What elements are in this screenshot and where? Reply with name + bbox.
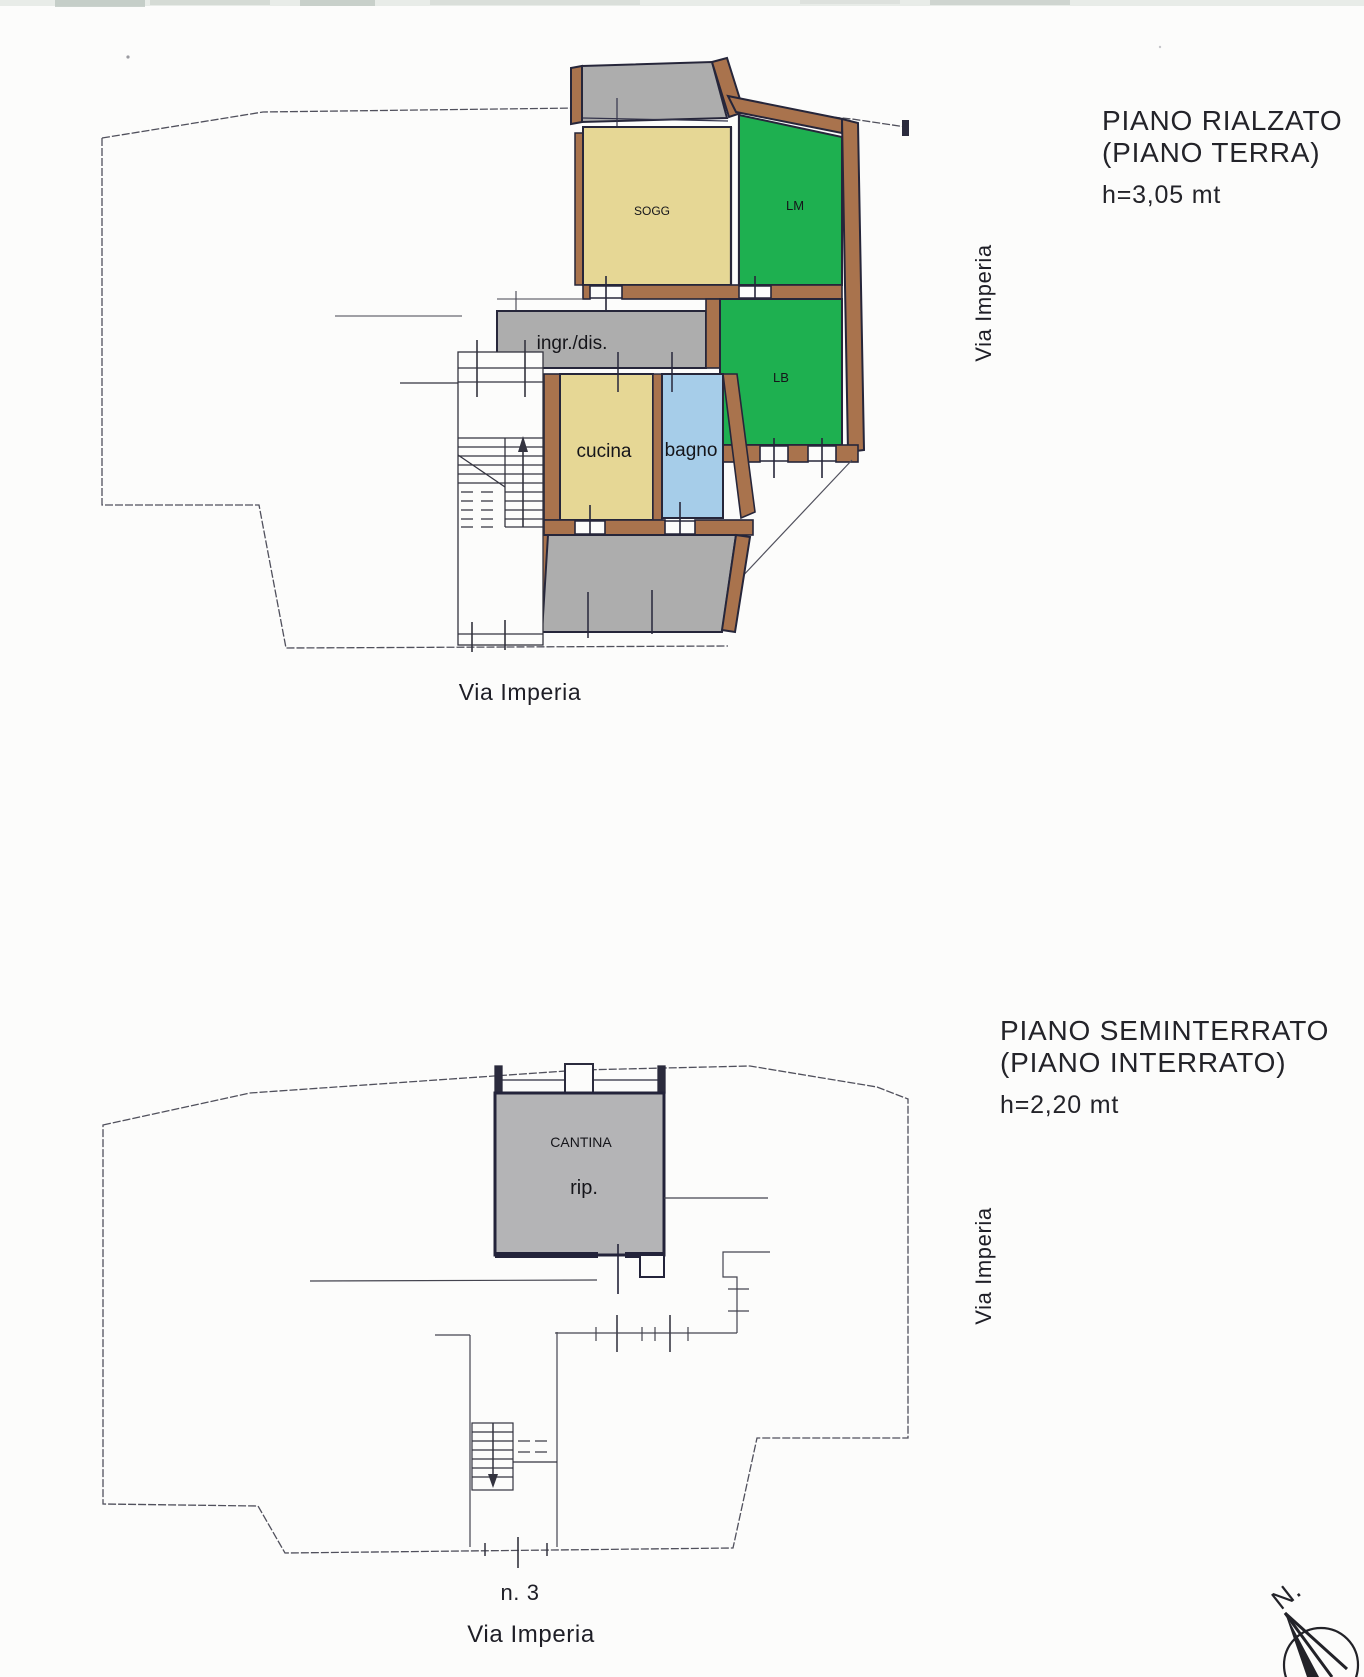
label-room-cucina: cucina <box>577 441 632 462</box>
floorplan-canvas: SOGG LM ingr./dis. cucina bagno LB PIANO… <box>0 0 1364 1677</box>
upper-terrace-post <box>902 120 909 136</box>
upper-wall-sogg-lm <box>731 115 739 285</box>
upper-wall-right <box>842 119 864 452</box>
compass-north-label: N. <box>1266 1574 1307 1615</box>
label-room-rip: rip. <box>570 1177 598 1199</box>
upper-top-balcony <box>571 58 744 124</box>
north-compass: N. <box>1266 1574 1358 1677</box>
lower-plan-drawing: CANTINA rip. <box>103 1064 908 1568</box>
upper-wall-cucina-bagno <box>653 374 662 520</box>
upper-street-bottom-label: Via Imperia <box>459 679 582 705</box>
label-room-bagno: bagno <box>665 440 718 461</box>
label-room-lb: LB <box>773 370 789 385</box>
upper-street-right-label: Via Imperia <box>971 244 996 362</box>
upper-title-line1: PIANO RIALZATO <box>1102 105 1342 136</box>
room-cantina <box>495 1093 664 1255</box>
upper-bottom-balcony <box>536 535 750 638</box>
upper-stairwell <box>400 340 543 652</box>
lower-height-label: h=2,20 mt <box>1000 1091 1119 1119</box>
label-room-sogg: SOGG <box>634 204 670 218</box>
label-room-ingr: ingr./dis. <box>537 333 608 354</box>
lower-stairwell <box>472 1423 557 1568</box>
upper-wall-sogg-left <box>575 133 583 285</box>
upper-plan-drawing: SOGG LM ingr./dis. cucina bagno LB <box>102 58 909 652</box>
upper-wall-cucina-left <box>544 374 560 520</box>
scan-artifact-strip <box>0 0 1364 59</box>
lower-street-bottom-label: Via Imperia <box>467 1621 595 1648</box>
lower-title-line2: (PIANO INTERRATO) <box>1000 1047 1286 1078</box>
upper-title-line2: (PIANO TERRA) <box>1102 137 1320 168</box>
upper-wall-ingr-lb <box>706 299 720 368</box>
label-room-cantina: CANTINA <box>550 1134 612 1150</box>
lower-street-right-label: Via Imperia <box>971 1207 996 1325</box>
label-room-lm: LM <box>786 198 804 213</box>
upper-height-label: h=3,05 mt <box>1102 181 1221 209</box>
scanned-floorplan-page: SOGG LM ingr./dis. cucina bagno LB PIANO… <box>0 0 1364 1677</box>
lower-title-line1: PIANO SEMINTERRATO <box>1000 1015 1329 1046</box>
lower-street-number: n. 3 <box>500 1580 539 1605</box>
